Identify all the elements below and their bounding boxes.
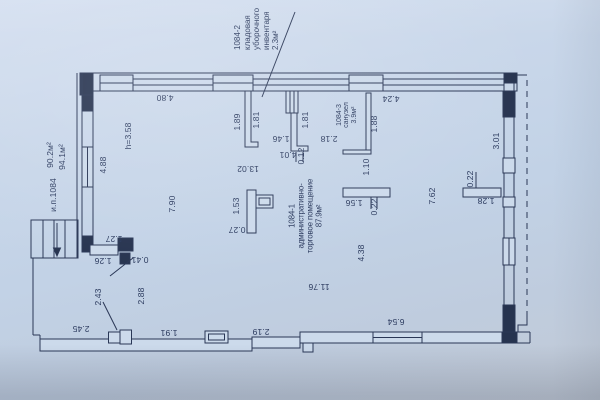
dimension-label: 4.24 xyxy=(383,94,400,104)
left-wall xyxy=(77,73,93,258)
room-label-line: 2.3м² xyxy=(271,4,281,50)
dimension-label: 4.01 xyxy=(280,150,297,160)
staircase xyxy=(31,220,78,258)
dimension-label: 6.54 xyxy=(388,317,405,327)
dimension-label: 1.27 xyxy=(106,234,123,244)
room-label-line: 1084-2 xyxy=(233,4,243,50)
floor-plan: 4.804.241.891.811.811.881.464.010.122.18… xyxy=(0,0,600,400)
leader-lines xyxy=(103,12,295,330)
dimension-label: 13.02 xyxy=(237,164,259,174)
blueprint-photo: 4.804.241.891.811.811.881.464.010.122.18… xyxy=(0,0,600,400)
dimension-label: 1.26 xyxy=(95,256,112,266)
dimension-label: 94.1м² xyxy=(57,144,67,170)
dimension-label: 7.62 xyxy=(427,188,437,205)
dimension-label: 3.01 xyxy=(491,133,501,150)
dimension-label: 1.81 xyxy=(251,112,261,129)
dimension-label: 1.10 xyxy=(361,159,371,176)
dimension-label: 1.88 xyxy=(369,116,379,133)
bottom-wall xyxy=(33,258,530,352)
dimension-label: 7.90 xyxy=(167,195,177,212)
dimension-label: 1.46 xyxy=(273,134,290,144)
room-label-line: инвентаря xyxy=(262,4,272,50)
dimension-label: 4.38 xyxy=(356,245,366,262)
dimension-label: 2.45 xyxy=(73,324,90,334)
room-label-line: 3.9м² xyxy=(351,99,358,131)
dimension-label: 11.76 xyxy=(308,282,329,292)
storage-room-label: 1084-2кладоваяуборочногоинвентаря2.3м² xyxy=(233,4,283,50)
dimension-label: 2.19 xyxy=(253,327,270,337)
dimension-label: 0.22 xyxy=(369,198,379,215)
room-label-line: торговое помещение xyxy=(306,179,315,254)
dimension-label: 0.27 xyxy=(228,225,245,235)
room-label-line: уборочного xyxy=(252,4,262,50)
dimension-label: 0.12 xyxy=(296,148,306,165)
dimension-label: 4.88 xyxy=(98,157,108,174)
right-wall xyxy=(503,83,515,333)
dimension-label: 2.43 xyxy=(93,289,103,306)
room-label-line: кладовая xyxy=(243,4,253,50)
room-label-line: 1084-3 xyxy=(336,99,343,131)
bathroom-label: 1084-3санузел3.9м² xyxy=(336,99,358,131)
dimension-label: 0.22 xyxy=(465,170,475,187)
room-label-line: санузел xyxy=(343,99,350,131)
dimension-label: 1.89 xyxy=(232,114,242,131)
dimension-label: h=3.58 xyxy=(123,123,133,150)
dimension-label: 2.88 xyxy=(136,288,146,305)
dimension-label: и.п.1084 xyxy=(48,178,58,212)
dimension-label: 1.81 xyxy=(300,112,310,129)
dimension-label: 2.18 xyxy=(321,134,338,144)
dimension-label: 1.56 xyxy=(345,198,362,208)
dimension-label: 1.53 xyxy=(231,198,241,215)
room-label-line: административно- xyxy=(297,179,306,254)
room-label-line: 1084-1 xyxy=(288,179,297,254)
boundary-dashed-line xyxy=(517,75,527,332)
dimension-label: 1.28 xyxy=(478,196,495,206)
dimension-label: 1.91 xyxy=(161,328,178,338)
main-room-label: 1084-1административно-торговое помещение… xyxy=(288,179,324,254)
dimension-label: 4.80 xyxy=(157,93,174,103)
dimension-label: 90.2м² xyxy=(45,142,55,168)
room-label-line: 87.9м² xyxy=(315,179,324,254)
dimension-label: 0.41 xyxy=(131,255,148,265)
